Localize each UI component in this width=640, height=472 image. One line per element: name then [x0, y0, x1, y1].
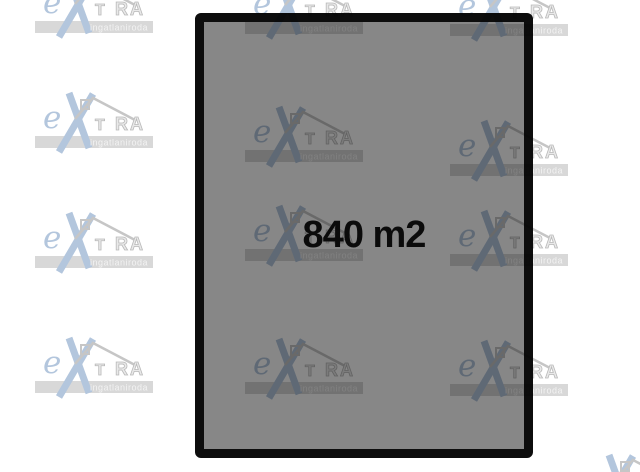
logo-letter-e: e — [583, 462, 601, 472]
house-roof-icon — [75, 0, 135, 5]
watermark-banner-bar — [35, 136, 153, 148]
x-glyph-stroke — [69, 93, 89, 148]
x-glyph-stroke — [609, 455, 629, 472]
logo-letters-ra: RA — [115, 234, 145, 254]
extra-watermark: e T RA ingatlaniroda — [575, 452, 640, 472]
watermark-tagline: ingatlaniroda — [90, 23, 148, 33]
logo-letters-ra: RA — [115, 359, 145, 379]
x-glyph-stroke — [69, 338, 89, 393]
x-glyph-stroke — [59, 339, 93, 397]
extra-watermark: e T RA ingatlaniroda — [35, 335, 165, 399]
extra-watermark: e T RA ingatlaniroda — [35, 90, 165, 154]
logo-letter-e: e — [43, 345, 61, 381]
logo-letters-ra: RA — [115, 114, 145, 134]
x-glyph-stroke — [69, 213, 89, 268]
watermark-banner-bar — [35, 381, 153, 393]
house-roof-icon — [75, 343, 135, 365]
logo-letters-ra: RA — [530, 232, 560, 252]
extra-logo-icon: e T RA ingatlaniroda — [35, 0, 165, 39]
house-roof-icon — [75, 218, 135, 240]
x-glyph-stroke — [599, 456, 633, 472]
watermark-tagline: ingatlaniroda — [90, 258, 148, 268]
chimney-icon — [81, 100, 89, 109]
x-glyph-stroke — [69, 0, 89, 33]
x-glyph-stroke — [59, 94, 93, 152]
x-glyph-stroke — [59, 0, 93, 37]
chimney-icon — [81, 220, 89, 229]
logo-letter-t: T — [95, 117, 105, 134]
logo-letters-ra: RA — [530, 362, 560, 382]
chimney-icon — [81, 345, 89, 354]
logo-letter-t: T — [95, 362, 105, 379]
extra-watermark: e T RA ingatlaniroda — [35, 0, 165, 39]
x-glyph-stroke — [59, 214, 93, 272]
area-label: 840 m2 — [204, 22, 524, 449]
logo-letter-e: e — [43, 0, 61, 21]
watermark-tagline: ingatlaniroda — [90, 138, 148, 148]
logo-letter-t: T — [95, 237, 105, 254]
extra-logo-icon: e T RA ingatlaniroda — [35, 335, 165, 399]
house-roof-icon — [75, 98, 135, 120]
chimney-icon — [621, 462, 629, 471]
logo-letters-ra: RA — [530, 142, 560, 162]
logo-letters-ra: RA — [115, 0, 145, 19]
logo-letter-e: e — [43, 100, 61, 136]
watermark-banner-bar — [35, 21, 153, 33]
extra-logo-icon: e T RA ingatlaniroda — [35, 90, 165, 154]
logo-letters-ra: RA — [530, 2, 560, 22]
watermark-tagline: ingatlaniroda — [90, 383, 148, 393]
house-roof-icon — [285, 0, 345, 6]
house-roof-icon — [615, 460, 640, 472]
house-roof-icon — [490, 0, 550, 8]
logo-letter-t: T — [95, 2, 105, 19]
extra-logo-icon: e T RA ingatlaniroda — [35, 210, 165, 274]
logo-letter-e: e — [43, 220, 61, 256]
extra-watermark: e T RA ingatlaniroda — [35, 210, 165, 274]
listing-image-canvas: 840 m2 e T RA ingatlaniroda e T RA ingat… — [0, 0, 640, 472]
extra-logo-icon: e T RA ingatlaniroda — [575, 452, 640, 472]
watermark-banner-bar — [35, 256, 153, 268]
